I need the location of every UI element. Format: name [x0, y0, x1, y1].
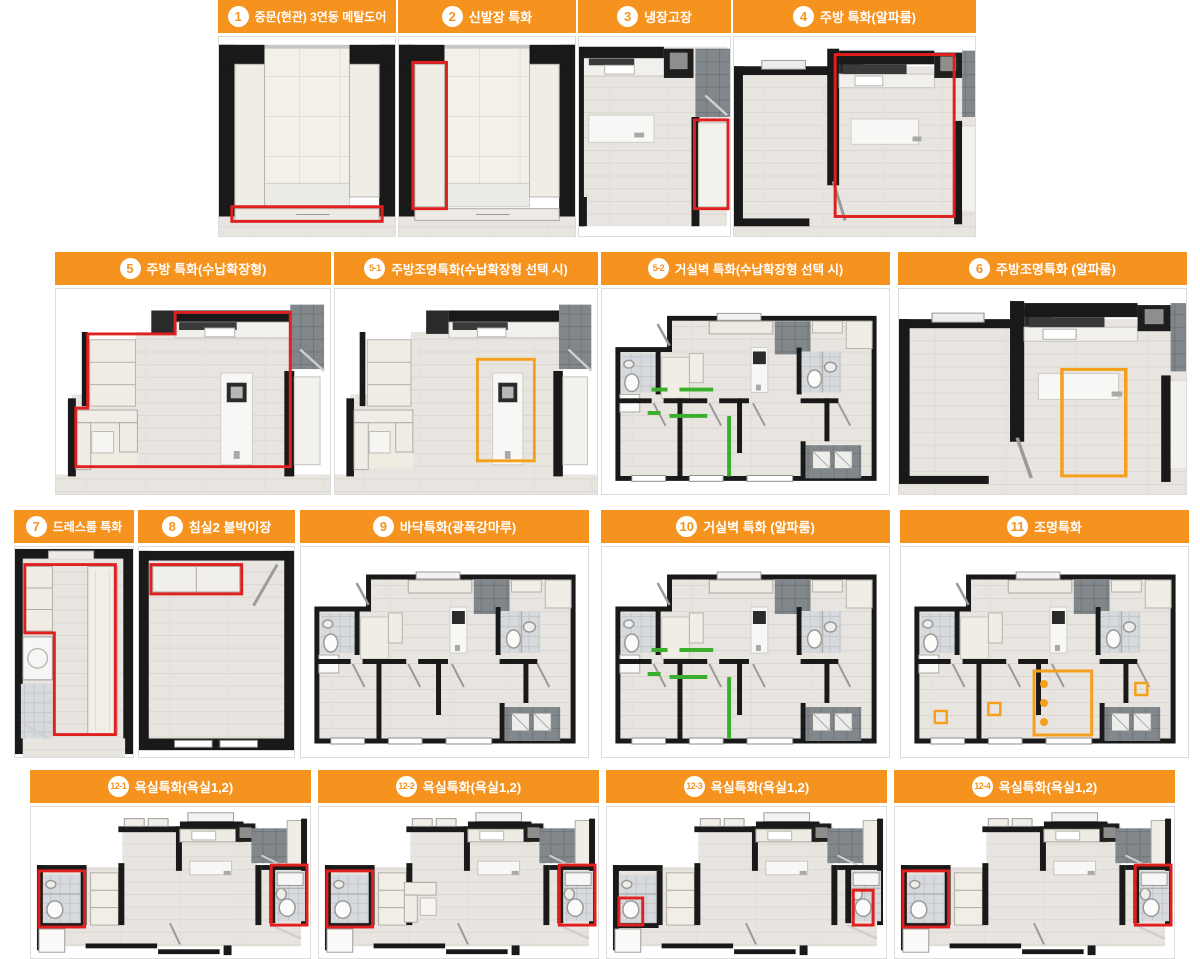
- panel-number-badge: 12-3: [684, 776, 705, 797]
- floor-plan-svg: [301, 547, 588, 757]
- panel-number-badge: 12-4: [972, 776, 993, 797]
- floor-plan: [900, 546, 1189, 758]
- feature-panel-8: 8침실2 붙박이장: [138, 510, 295, 758]
- feature-panel-6: 6주방조명특화 (알파룸): [898, 252, 1187, 495]
- floor-plan-svg: [602, 289, 889, 494]
- panel-title: 조명특화: [1034, 517, 1082, 536]
- panel-header: 12-4욕실특화(욕실1,2): [894, 770, 1175, 803]
- panel-header: 5-1주방조명특화(수납확장형 선택 시): [334, 252, 598, 285]
- feature-panel-2: 2신발장 특화: [398, 0, 576, 237]
- panel-title: 신발장 특화: [469, 7, 532, 26]
- floor-plan: [55, 288, 331, 495]
- floor-plan-svg: [15, 547, 133, 757]
- floor-plan: [733, 36, 976, 237]
- panel-title: 주방 특화(수납확장형): [147, 259, 267, 278]
- floor-plan-options-board: 1중문(현관) 3연동 메탈도어2신발장 특화3냉장고장4주방 특화(알파룸)5…: [0, 0, 1200, 959]
- feature-panel-4: 4주방 특화(알파룸): [733, 0, 976, 237]
- floor-plan: [578, 36, 731, 237]
- floor-plan: [300, 546, 589, 758]
- floor-plan: [334, 288, 598, 495]
- panel-title: 침실2 붙박이장: [189, 517, 272, 536]
- feature-panel-5-2: 5-2거실벽 특화(수납확장형 선택 시): [601, 252, 890, 495]
- panel-number-badge: 5-1: [364, 258, 385, 279]
- floor-plan-svg: [734, 37, 975, 236]
- floor-plan: [601, 288, 890, 495]
- panel-title: 거실벽 특화 (알파룸): [703, 517, 815, 536]
- floor-plan: [606, 806, 887, 959]
- panel-header: 6주방조명특화 (알파룸): [898, 252, 1187, 285]
- floor-plan-svg: [319, 807, 598, 958]
- floor-plan-svg: [579, 37, 730, 236]
- panel-number-badge: 1: [228, 6, 249, 27]
- panel-title: 욕실특화(욕실1,2): [711, 777, 810, 796]
- panel-header: 4주방 특화(알파룸): [733, 0, 976, 33]
- panel-title: 욕실특화(욕실1,2): [423, 777, 522, 796]
- floor-plan-svg: [399, 37, 575, 236]
- floor-plan: [898, 288, 1187, 495]
- panel-number-badge: 10: [676, 516, 697, 537]
- panel-number-badge: 5: [120, 258, 141, 279]
- panel-number-badge: 9: [373, 516, 394, 537]
- feature-panel-1: 1중문(현관) 3연동 메탈도어: [218, 0, 396, 237]
- feature-panel-5: 5주방 특화(수납확장형): [55, 252, 331, 495]
- feature-panel-7: 7드레스룸 특화: [14, 510, 134, 758]
- panel-title: 주방조명특화(수납확장형 선택 시): [391, 259, 567, 278]
- floor-plan: [30, 806, 311, 959]
- panel-number-badge: 6: [969, 258, 990, 279]
- floor-plan-svg: [895, 807, 1174, 958]
- floor-plan: [601, 546, 890, 758]
- panel-header: 8침실2 붙박이장: [138, 510, 295, 543]
- feature-panel-11: 11조명특화: [900, 510, 1189, 758]
- floor-plan: [398, 36, 576, 237]
- panel-title: 드레스룸 특화: [53, 518, 123, 535]
- feature-panel-12-2: 12-2욕실특화(욕실1,2): [318, 770, 599, 959]
- panel-number-badge: 11: [1007, 516, 1028, 537]
- panel-title: 주방조명특화 (알파룸): [996, 259, 1116, 278]
- panel-header: 9바닥특화(광폭강마루): [300, 510, 589, 543]
- panel-header: 10거실벽 특화 (알파룸): [601, 510, 890, 543]
- panel-title: 욕실특화(욕실1,2): [135, 777, 234, 796]
- panel-title: 중문(현관) 3연동 메탈도어: [255, 8, 387, 25]
- floor-plan-svg: [899, 289, 1186, 494]
- floor-plan: [894, 806, 1175, 959]
- floor-plan: [14, 546, 134, 758]
- panel-number-badge: 7: [26, 516, 47, 537]
- floor-plan-svg: [56, 289, 330, 494]
- panel-number-badge: 3: [617, 6, 638, 27]
- feature-panel-5-1: 5-1주방조명특화(수납확장형 선택 시): [334, 252, 598, 495]
- panel-title: 욕실특화(욕실1,2): [999, 777, 1098, 796]
- panel-number-badge: 5-2: [648, 258, 669, 279]
- floor-plan: [318, 806, 599, 959]
- feature-panel-9: 9바닥특화(광폭강마루): [300, 510, 589, 758]
- feature-panel-3: 3냉장고장: [578, 0, 731, 237]
- feature-panel-12-3: 12-3욕실특화(욕실1,2): [606, 770, 887, 959]
- floor-plan-svg: [219, 37, 395, 236]
- feature-panel-12-1: 12-1욕실특화(욕실1,2): [30, 770, 311, 959]
- panel-header: 12-3욕실특화(욕실1,2): [606, 770, 887, 803]
- floor-plan-svg: [139, 547, 294, 757]
- feature-panel-10: 10거실벽 특화 (알파룸): [601, 510, 890, 758]
- panel-title: 주방 특화(알파룸): [820, 7, 916, 26]
- panel-header: 7드레스룸 특화: [14, 510, 134, 543]
- panel-title: 냉장고장: [644, 7, 692, 26]
- panel-number-badge: 8: [162, 516, 183, 537]
- panel-number-badge: 12-2: [396, 776, 417, 797]
- floor-plan-svg: [602, 547, 889, 757]
- floor-plan-svg: [607, 807, 886, 958]
- panel-header: 12-2욕실특화(욕실1,2): [318, 770, 599, 803]
- floor-plan: [218, 36, 396, 237]
- panel-number-badge: 4: [793, 6, 814, 27]
- floor-plan-svg: [31, 807, 310, 958]
- floor-plan: [138, 546, 295, 758]
- panel-title: 거실벽 특화(수납확장형 선택 시): [675, 259, 843, 278]
- panel-header: 12-1욕실특화(욕실1,2): [30, 770, 311, 803]
- panel-header: 2신발장 특화: [398, 0, 576, 33]
- panel-header: 3냉장고장: [578, 0, 731, 33]
- panel-title: 바닥특화(광폭강마루): [400, 517, 516, 536]
- panel-header: 5-2거실벽 특화(수납확장형 선택 시): [601, 252, 890, 285]
- floor-plan-svg: [335, 289, 597, 494]
- panel-number-badge: 12-1: [108, 776, 129, 797]
- panel-number-badge: 2: [442, 6, 463, 27]
- panel-header: 5주방 특화(수납확장형): [55, 252, 331, 285]
- panel-header: 11조명특화: [900, 510, 1189, 543]
- floor-plan-svg: [901, 547, 1188, 757]
- panel-header: 1중문(현관) 3연동 메탈도어: [218, 0, 396, 33]
- feature-panel-12-4: 12-4욕실특화(욕실1,2): [894, 770, 1175, 959]
